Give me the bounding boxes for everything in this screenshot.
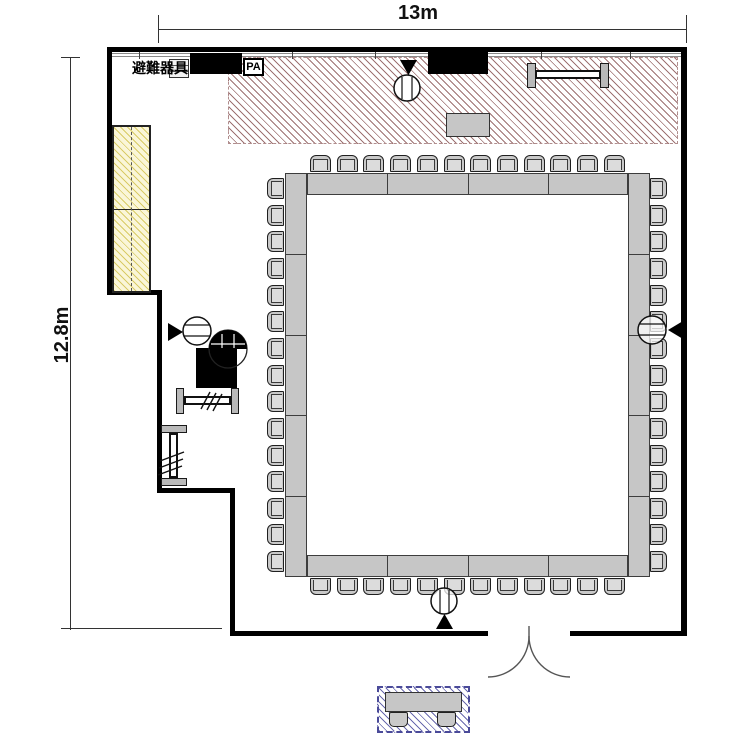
chair-seat — [313, 159, 328, 170]
chair — [650, 178, 667, 199]
chair-seat — [271, 314, 282, 329]
chair-seat — [420, 580, 435, 591]
chair-seat — [271, 341, 282, 356]
chair — [337, 578, 358, 595]
chair — [417, 155, 438, 172]
chair — [650, 365, 667, 386]
chair — [577, 155, 598, 172]
chair-seat — [366, 159, 381, 170]
reception-chair — [389, 712, 408, 727]
cabinet-door-split — [131, 127, 132, 291]
chair — [650, 418, 667, 439]
chair — [604, 578, 625, 595]
wall-left-lower — [230, 493, 235, 631]
chair-seat — [652, 288, 663, 303]
chair — [267, 285, 284, 306]
dimension-tick — [158, 15, 159, 43]
folded-table-end — [231, 388, 239, 414]
chair-seat — [393, 580, 408, 591]
chair — [497, 155, 518, 172]
chair-seat — [652, 501, 663, 516]
folded-table — [184, 396, 231, 405]
chair-seat — [652, 527, 663, 542]
chair-seat — [340, 159, 355, 170]
chair — [650, 471, 667, 492]
table-segment-divider — [387, 173, 388, 195]
chair — [497, 578, 518, 595]
height-dimension-label: 12.8m — [51, 300, 75, 370]
chair-seat — [652, 448, 663, 463]
chair — [550, 578, 571, 595]
chair-seat — [271, 234, 282, 249]
chair — [650, 258, 667, 279]
chair-seat — [271, 527, 282, 542]
folded-table-end — [600, 63, 609, 88]
chair-seat — [271, 288, 282, 303]
chair — [267, 258, 284, 279]
folded-table-end — [161, 478, 187, 486]
chair — [650, 285, 667, 306]
double-door-icon — [488, 626, 570, 677]
chair — [650, 445, 667, 466]
wall-step — [157, 488, 235, 493]
wall-right — [681, 47, 687, 636]
chair — [267, 418, 284, 439]
chair-seat — [473, 580, 488, 591]
chair-seat — [340, 580, 355, 591]
chair-seat — [652, 474, 663, 489]
folded-table-end — [161, 425, 187, 433]
chair-seat — [447, 159, 462, 170]
wall-speaker-box — [190, 53, 242, 74]
chair-seat — [420, 159, 435, 170]
table-segment-divider — [628, 254, 650, 255]
chair-seat — [500, 159, 515, 170]
table-segment-divider — [548, 555, 549, 577]
dimension-extension-line — [62, 628, 222, 629]
chair — [267, 391, 284, 412]
chair-seat — [652, 421, 663, 436]
chair — [417, 578, 438, 595]
chair-seat — [580, 580, 595, 591]
chair — [267, 524, 284, 545]
chair-seat — [527, 159, 542, 170]
chair — [363, 578, 384, 595]
stage-table — [446, 113, 490, 137]
chair — [650, 391, 667, 412]
chair — [650, 551, 667, 572]
chair-seat — [271, 208, 282, 223]
chair-seat — [607, 580, 622, 591]
speaker-icon-left — [168, 317, 211, 345]
chair-seat — [652, 208, 663, 223]
table-segment-divider — [387, 555, 388, 577]
chair-seat — [271, 554, 282, 569]
wall-left-middle — [157, 290, 162, 493]
table-segment-divider — [285, 254, 307, 255]
chair — [524, 578, 545, 595]
chair — [650, 498, 667, 519]
pa-label: PA — [243, 58, 264, 76]
chair — [650, 311, 667, 332]
chair-seat — [473, 159, 488, 170]
chair — [267, 338, 284, 359]
evacuation-equipment-label: 避難器具 — [132, 58, 188, 78]
chair — [310, 155, 331, 172]
chair — [577, 578, 598, 595]
chair-seat — [271, 394, 282, 409]
dimension-tick — [61, 57, 80, 58]
chair-seat — [652, 261, 663, 276]
chair — [444, 155, 465, 172]
table-segment-divider — [628, 496, 650, 497]
wall-equipment-box — [428, 52, 488, 74]
chair — [650, 205, 667, 226]
chair — [363, 155, 384, 172]
chair-seat — [527, 580, 542, 591]
chair — [524, 155, 545, 172]
chair-seat — [271, 368, 282, 383]
chair-seat — [271, 448, 282, 463]
reception-table — [385, 692, 462, 712]
chair — [267, 231, 284, 252]
table-segment-divider — [285, 415, 307, 416]
chair-seat — [313, 580, 328, 591]
dimension-tick — [686, 15, 687, 43]
chair-seat — [607, 159, 622, 170]
chair — [390, 578, 411, 595]
folded-table — [169, 433, 178, 478]
chair-seat — [652, 368, 663, 383]
reception-area — [377, 686, 470, 733]
conference-table-band-left — [285, 173, 307, 577]
chair-seat — [500, 580, 515, 591]
chair-seat — [271, 181, 282, 196]
chair — [444, 578, 465, 595]
table-segment-divider — [628, 335, 650, 336]
chair-seat — [580, 159, 595, 170]
chair — [267, 551, 284, 572]
storage-cabinet — [112, 125, 151, 293]
table-segment-divider — [468, 173, 469, 195]
chair-seat — [271, 261, 282, 276]
conference-table-band-right — [628, 173, 650, 577]
chair — [267, 445, 284, 466]
chair — [650, 524, 667, 545]
chair — [550, 155, 571, 172]
chair-seat — [652, 234, 663, 249]
chair — [650, 231, 667, 252]
chair — [267, 311, 284, 332]
chair-seat — [652, 554, 663, 569]
chair-seat — [271, 421, 282, 436]
chair — [267, 178, 284, 199]
folded-table-end — [176, 388, 184, 414]
chair-seat — [553, 580, 568, 591]
chair — [390, 155, 411, 172]
chair-seat — [553, 159, 568, 170]
chair-seat — [271, 474, 282, 489]
chair — [337, 155, 358, 172]
wall-bottom-left — [230, 631, 488, 636]
equipment-rack — [196, 348, 237, 388]
table-segment-divider — [285, 335, 307, 336]
table-segment-divider — [285, 496, 307, 497]
chair-seat — [271, 501, 282, 516]
floor-plan: 13m 12.8m 避難器具 PA — [0, 0, 750, 750]
width-dimension-line — [158, 29, 687, 30]
chair-seat — [652, 181, 663, 196]
reception-chair — [437, 712, 456, 727]
chair-seat — [447, 580, 462, 591]
table-segment-divider — [468, 555, 469, 577]
chair — [470, 155, 491, 172]
chair-seat — [652, 394, 663, 409]
chair — [267, 365, 284, 386]
chair — [650, 338, 667, 359]
wall-top — [107, 47, 687, 52]
chair-seat — [393, 159, 408, 170]
chair-seat — [652, 341, 663, 356]
folded-table — [535, 70, 601, 79]
chair — [267, 205, 284, 226]
chair — [310, 578, 331, 595]
chair — [470, 578, 491, 595]
chair — [604, 155, 625, 172]
table-segment-divider — [548, 173, 549, 195]
chair — [267, 471, 284, 492]
width-dimension-label: 13m — [358, 2, 478, 25]
wall-bottom-right — [570, 631, 681, 636]
chair-seat — [366, 580, 381, 591]
chair-seat — [652, 314, 663, 329]
chair — [267, 498, 284, 519]
table-segment-divider — [628, 415, 650, 416]
